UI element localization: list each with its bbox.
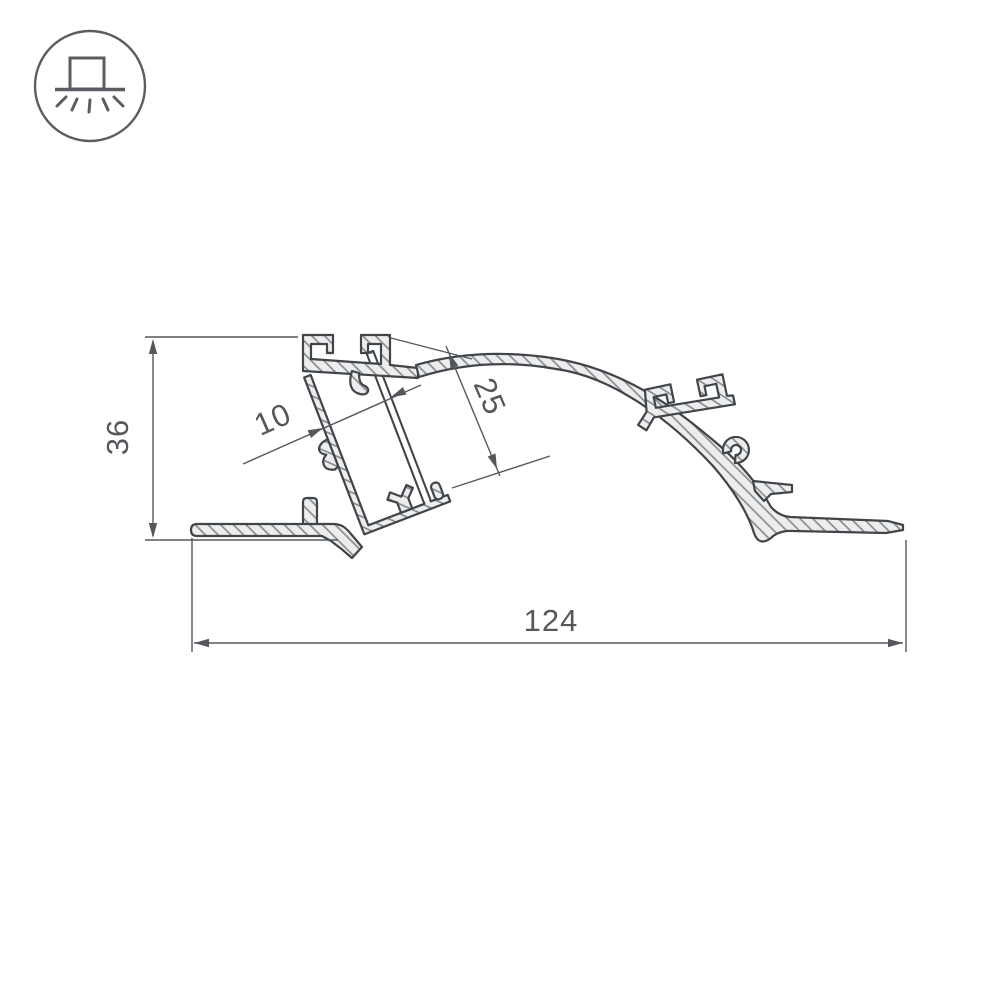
profile-cross-section (191, 335, 903, 558)
dim-overall-width: 124 (192, 538, 906, 652)
dim-label-slot-width: 10 (249, 396, 297, 443)
profile-drawing-canvas: 36 124 10 25 (0, 0, 1000, 1000)
extension-line (391, 338, 472, 359)
left-flange-band (191, 524, 362, 558)
left-flange (303, 498, 317, 526)
surface-mounted-light-icon (35, 31, 145, 141)
icon-profile-box (70, 58, 104, 89)
top-mounting-rail (303, 335, 418, 378)
channel-end-hook (430, 481, 444, 500)
icon-light-rays (57, 97, 123, 112)
dim-label-width: 124 (524, 603, 579, 638)
dimension-annotations: 36 124 10 25 (100, 337, 906, 652)
extension-line (452, 456, 550, 488)
icon-circle (35, 31, 145, 141)
dim-label-height: 36 (100, 419, 135, 455)
technical-drawing-page: 36 124 10 25 (0, 0, 1000, 1000)
